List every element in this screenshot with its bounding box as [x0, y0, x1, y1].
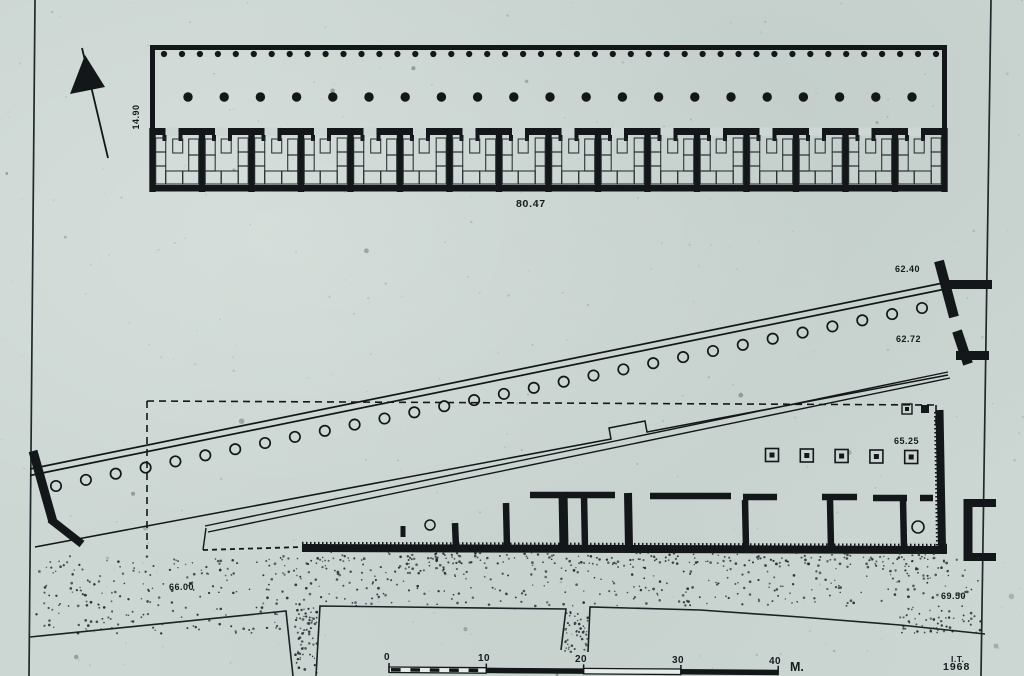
scale-tick-0: 0	[384, 652, 390, 663]
plan-sheet: 14.90 80.47 62.40 62.72 65.25 66.00 69.5…	[0, 0, 1024, 676]
scale-tick-30: 30	[672, 655, 684, 666]
restored-outline-dashed	[147, 401, 936, 549]
credit-year: 1968	[943, 663, 970, 671]
scale-tick-10: 10	[478, 653, 490, 664]
border-room-fragment	[966, 499, 996, 561]
elevation-label-62-72: 62.72	[896, 334, 921, 344]
elevation-label-66-00: 66.00	[169, 582, 194, 592]
plate-border-lines	[29, 0, 991, 676]
north-arrow-icon	[70, 48, 108, 158]
lower-building-plan	[302, 404, 947, 550]
dimension-label-north-stoa-length: 80.47	[516, 198, 546, 210]
dimension-label-north-stoa-width: 14.90	[131, 104, 141, 129]
scale-tick-40: 40	[769, 656, 781, 667]
diagonal-stoa-plan	[30, 261, 992, 550]
elevation-label-62-40: 62.40	[895, 264, 920, 274]
elevation-label-69-50: 69.50	[941, 591, 966, 601]
terrace-outlines	[30, 606, 985, 676]
elevation-label-65-25: 65.25	[894, 436, 919, 446]
scale-tick-20: 20	[575, 654, 587, 665]
site-plan-drawing	[0, 0, 1024, 676]
ground-stipple	[35, 551, 981, 674]
north-stoa-plan	[149, 45, 947, 192]
scale-unit-label: M.	[790, 660, 804, 674]
